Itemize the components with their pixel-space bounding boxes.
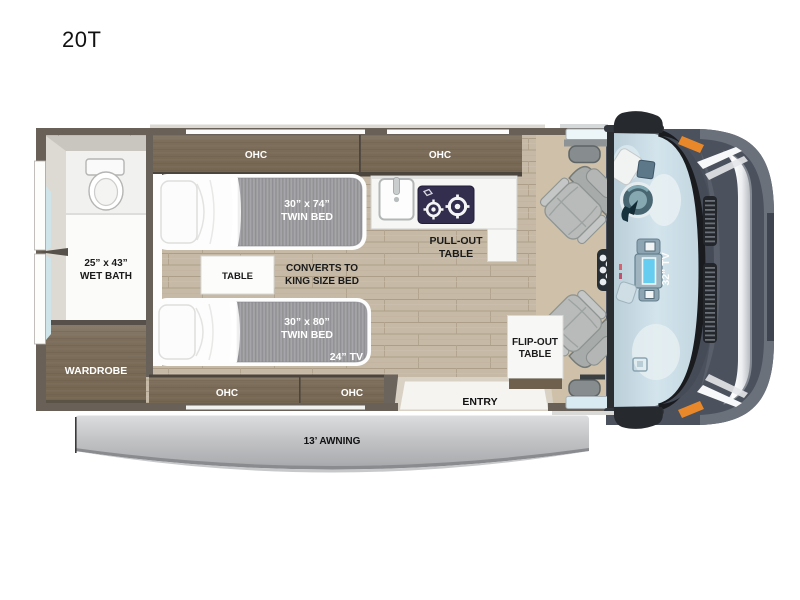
svg-text:WET BATH: WET BATH bbox=[80, 271, 132, 282]
svg-text:KING SIZE BED: KING SIZE BED bbox=[285, 276, 359, 287]
svg-text:WARDROBE: WARDROBE bbox=[65, 365, 127, 377]
svg-text:ENTRY: ENTRY bbox=[462, 396, 497, 408]
svg-text:OHC: OHC bbox=[216, 388, 238, 399]
svg-text:TABLE: TABLE bbox=[439, 248, 473, 260]
svg-text:30” x 80”: 30” x 80” bbox=[284, 316, 330, 328]
svg-text:FLIP-OUT: FLIP-OUT bbox=[512, 337, 558, 348]
svg-text:OHC: OHC bbox=[429, 150, 451, 161]
svg-text:20T: 20T bbox=[62, 27, 101, 52]
svg-text:CONVERTS TO: CONVERTS TO bbox=[286, 263, 358, 274]
svg-text:TWIN BED: TWIN BED bbox=[281, 329, 333, 341]
svg-text:TABLE: TABLE bbox=[519, 349, 552, 360]
svg-text:OHC: OHC bbox=[341, 388, 363, 399]
svg-text:13’ AWNING: 13’ AWNING bbox=[304, 436, 361, 447]
svg-text:24” TV: 24” TV bbox=[330, 351, 363, 363]
svg-text:TABLE: TABLE bbox=[222, 271, 253, 282]
svg-text:25” x 43”: 25” x 43” bbox=[84, 258, 127, 269]
svg-text:OHC: OHC bbox=[245, 150, 267, 161]
svg-text:30” x 74”: 30” x 74” bbox=[284, 198, 330, 210]
svg-text:TWIN BED: TWIN BED bbox=[281, 211, 333, 223]
svg-text:32” TV: 32” TV bbox=[660, 252, 672, 285]
svg-text:PULL-OUT: PULL-OUT bbox=[429, 235, 483, 247]
